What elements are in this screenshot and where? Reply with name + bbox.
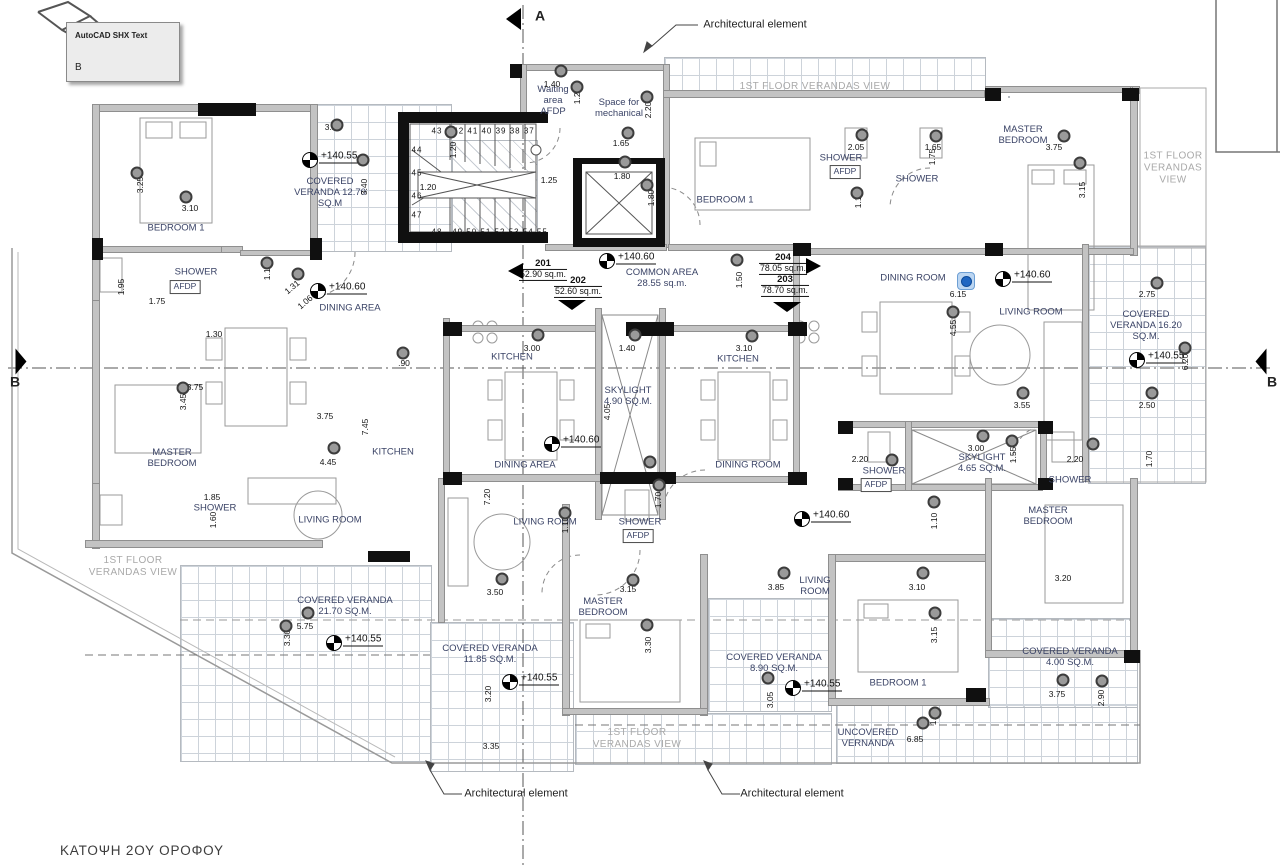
- level-marker-icon: [995, 271, 1011, 287]
- survey-dot: [746, 330, 759, 343]
- wall: [595, 308, 602, 520]
- wall: [443, 318, 450, 478]
- survey-dot: [1151, 277, 1164, 290]
- unit-arrow-201: [508, 263, 523, 279]
- survey-dot: [653, 479, 666, 492]
- wall: [810, 248, 988, 255]
- afdp-box: AFDP: [170, 280, 201, 294]
- survey-dot: [1006, 435, 1019, 448]
- survey-dot: [641, 619, 654, 632]
- survey-dot: [1087, 438, 1100, 451]
- survey-dot: [947, 306, 960, 319]
- wall: [700, 554, 708, 716]
- wall-structural: [573, 158, 582, 246]
- survey-dot: [496, 573, 509, 586]
- wall: [85, 540, 323, 548]
- survey-dot: [851, 187, 864, 200]
- level-value: +140.55: [319, 151, 359, 164]
- survey-dot: [177, 382, 190, 395]
- wall: [92, 104, 100, 306]
- survey-dot: [619, 156, 632, 169]
- wall: [92, 300, 100, 490]
- survey-dot: [644, 456, 657, 469]
- survey-dot: [357, 154, 370, 167]
- wall: [905, 421, 912, 491]
- level-value: +140.60: [811, 510, 851, 523]
- wall: [240, 250, 312, 256]
- wall-structural: [985, 243, 1003, 256]
- level-marker-icon: [599, 253, 615, 269]
- level-marker-icon: [302, 152, 318, 168]
- survey-dot: [331, 119, 344, 132]
- survey-dot: [731, 254, 744, 267]
- afdp-box: AFDP: [623, 529, 654, 543]
- staircase: [410, 124, 541, 232]
- survey-dot: [917, 717, 930, 730]
- level-value: +140.60: [1012, 270, 1052, 283]
- wall: [985, 86, 1135, 93]
- survey-dot: [778, 567, 791, 580]
- survey-dot: [180, 191, 193, 204]
- survey-dot: [928, 496, 941, 509]
- survey-dot: [929, 707, 942, 720]
- wall-structural: [838, 421, 853, 434]
- survey-dot: [1017, 387, 1030, 400]
- selection-grip[interactable]: [957, 272, 975, 290]
- afdp-box: AFDP: [830, 165, 861, 179]
- survey-dot: [629, 329, 642, 342]
- wall-structural: [398, 232, 548, 243]
- wall-structural: [443, 322, 462, 336]
- survey-dot: [930, 130, 943, 143]
- wall: [443, 474, 603, 482]
- wall-structural: [656, 158, 665, 246]
- level-value: +140.55: [519, 673, 559, 686]
- survey-dot: [131, 167, 144, 180]
- section-marker-b-right-icon: [1256, 349, 1267, 375]
- survey-dot: [532, 329, 545, 342]
- wall: [460, 325, 600, 332]
- wall: [838, 421, 1043, 428]
- level-value: +140.60: [327, 282, 367, 295]
- survey-dot: [445, 126, 458, 139]
- level-marker-icon: [785, 680, 801, 696]
- survey-dot: [1179, 342, 1192, 355]
- level-value: +140.55: [802, 679, 842, 692]
- level-marker-icon: [794, 511, 810, 527]
- unit-arrow-204: [806, 258, 821, 274]
- furniture: [100, 118, 1123, 702]
- survey-dot: [886, 454, 899, 467]
- wall-structural: [398, 112, 548, 123]
- survey-dot: [302, 607, 315, 620]
- wall: [520, 64, 668, 71]
- survey-dot: [641, 179, 654, 192]
- survey-dot: [292, 268, 305, 281]
- wall: [562, 504, 570, 716]
- survey-dot: [1146, 387, 1159, 400]
- wall: [438, 478, 445, 623]
- section-marker-a-icon: [506, 8, 521, 30]
- survey-dot: [641, 91, 654, 104]
- wall: [670, 325, 792, 332]
- survey-dot: [1058, 130, 1071, 143]
- wall-structural: [92, 238, 103, 260]
- wall: [1040, 428, 1047, 484]
- skylight-center: [602, 315, 658, 515]
- survey-dot: [1057, 674, 1070, 687]
- tooltip-title: AutoCAD SHX Text: [75, 31, 147, 40]
- survey-dot: [1096, 675, 1109, 688]
- level-marker-icon: [502, 674, 518, 690]
- survey-dot: [571, 81, 584, 94]
- wall-structural: [573, 238, 665, 247]
- afdp-box: AFDP: [861, 478, 892, 492]
- level-marker-icon: [1129, 352, 1145, 368]
- floor-plan-canvas: A B B AutoCAD SHX Text B ΚΑΤΟΨΗ 2ΟΥ ΟΡΟΦ…: [0, 0, 1280, 867]
- wall-structural: [788, 322, 807, 336]
- survey-dot: [280, 620, 293, 633]
- wall: [562, 708, 708, 715]
- level-value: +140.55: [343, 634, 383, 647]
- wall: [663, 90, 985, 98]
- survey-dot: [555, 65, 568, 78]
- wall-structural: [1038, 421, 1053, 434]
- wall-structural: [398, 112, 409, 243]
- unit-label-203: 20378.70 sq.m.: [761, 275, 809, 297]
- wall: [985, 478, 992, 658]
- survey-dot: [917, 567, 930, 580]
- wall: [668, 244, 796, 251]
- survey-dot: [929, 607, 942, 620]
- wall: [1002, 248, 1134, 255]
- survey-dot: [328, 442, 341, 455]
- unit-label-202: 20252.60 sq.m.: [554, 276, 602, 298]
- unit-arrow-203: [773, 302, 801, 312]
- survey-dot: [1074, 157, 1087, 170]
- wall-structural: [510, 64, 522, 78]
- wall-structural: [838, 478, 853, 490]
- leader-lines: [426, 25, 740, 794]
- level-marker-icon: [310, 283, 326, 299]
- wall-structural: [1038, 478, 1053, 490]
- wall: [828, 554, 990, 562]
- level-marker-icon: [326, 635, 342, 651]
- level-marker-icon: [544, 436, 560, 452]
- wall: [310, 104, 318, 244]
- wall-structural: [788, 472, 807, 485]
- survey-dot: [261, 257, 274, 270]
- section-marker-b-left-icon: [16, 349, 27, 375]
- wall-structural: [198, 103, 256, 116]
- wall-structural: [1122, 88, 1139, 101]
- wall-structural: [966, 688, 986, 702]
- wall: [1130, 86, 1138, 256]
- wall-structural: [1124, 650, 1140, 663]
- survey-dot: [977, 430, 990, 443]
- wall-structural: [985, 88, 1001, 101]
- wall-structural: [443, 472, 462, 485]
- survey-dot: [559, 507, 572, 520]
- autocad-shx-tooltip: AutoCAD SHX Text B: [66, 22, 180, 82]
- tooltip-value: B: [75, 62, 82, 73]
- unit-label-204: 20478.05 sq.m.: [759, 253, 807, 275]
- level-value: +140.60: [561, 435, 601, 448]
- wall-structural: [310, 238, 322, 260]
- wall-structural: [368, 551, 410, 562]
- survey-dot: [627, 574, 640, 587]
- wall: [1130, 478, 1138, 658]
- page-title: ΚΑΤΟΨΗ 2ΟΥ ΟΡΟΦΟΥ: [60, 843, 224, 858]
- unit-arrow-202: [558, 300, 586, 310]
- wall: [92, 246, 222, 253]
- wall: [672, 476, 792, 483]
- survey-dot: [622, 127, 635, 140]
- survey-dot: [762, 672, 775, 685]
- survey-dot: [856, 129, 869, 142]
- survey-dot: [397, 347, 410, 360]
- level-value: +140.60: [616, 252, 656, 265]
- wall: [985, 650, 1137, 658]
